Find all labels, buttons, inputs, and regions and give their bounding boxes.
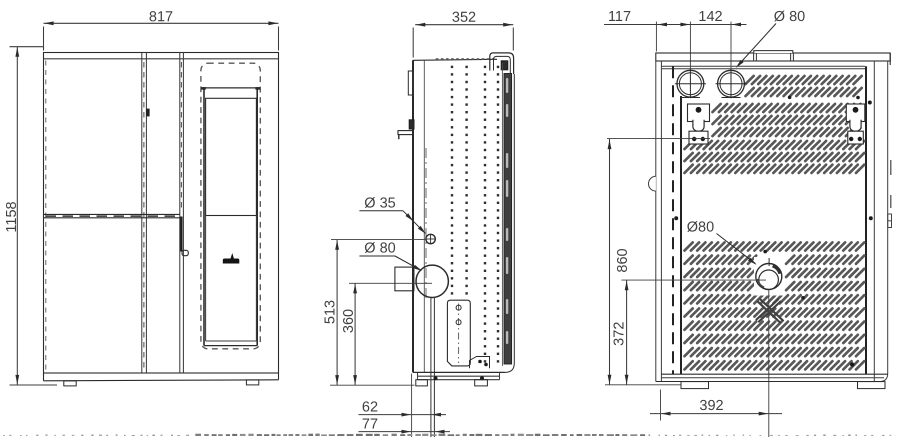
svg-text:372: 372 <box>611 322 627 346</box>
svg-text:Ø 35: Ø 35 <box>364 195 395 211</box>
svg-text:77: 77 <box>362 416 378 432</box>
svg-text:392: 392 <box>699 398 723 414</box>
svg-text:Ø80: Ø80 <box>687 219 714 235</box>
svg-text:352: 352 <box>452 10 476 26</box>
svg-text:Ø 80: Ø 80 <box>774 9 805 25</box>
svg-text:513: 513 <box>323 300 339 324</box>
svg-text:Ø 80: Ø 80 <box>364 240 395 256</box>
svg-text:62: 62 <box>362 399 378 415</box>
svg-text:142: 142 <box>698 9 722 25</box>
svg-text:117: 117 <box>608 9 631 25</box>
svg-text:860: 860 <box>615 248 631 272</box>
